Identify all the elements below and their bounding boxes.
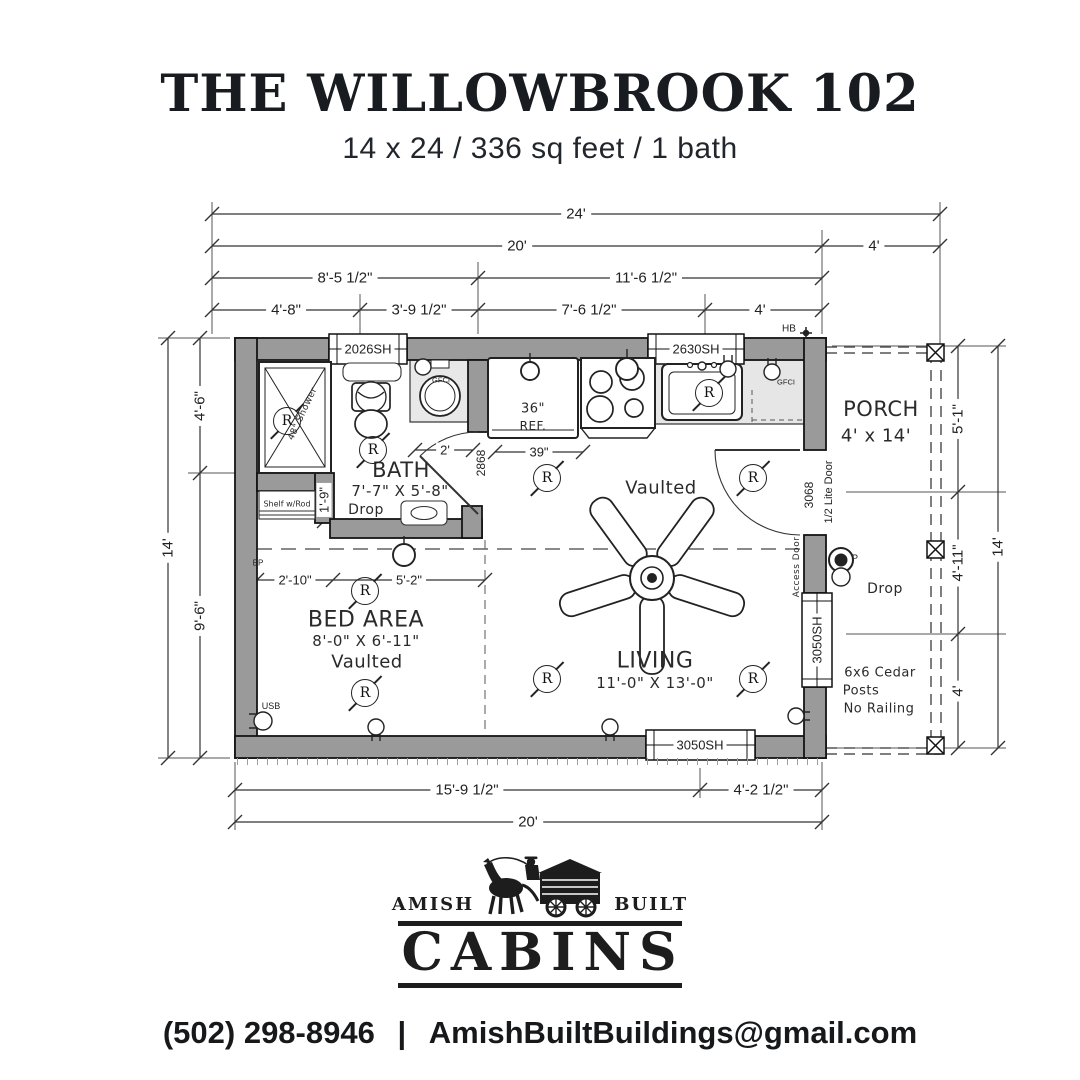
phone-number: (502) 298-8946 [163,1015,375,1050]
room-living-name: LIVING [617,649,694,674]
room-bed-name: BED AREA [308,608,424,633]
dim-seg3: 7'-6 1/2" [557,302,622,319]
room-bath-size: 7'-7" X 5'-8" [351,482,448,500]
company-logo: AMISH [390,853,690,988]
usb-outlet-label: USB [262,701,281,711]
dim-top-porch: 4' [863,238,884,255]
dim-seg4: 4' [749,302,770,319]
dim-left-top: 4'-6" [192,386,209,426]
room-porch-size: 4' x 14' [841,426,911,447]
room-bed-note: Vaulted [331,652,402,673]
window-label-3050sh-right: 3050SH [810,614,825,667]
siding-hatch [237,758,822,765]
gfci-label-kitchen: GFCI [777,378,795,387]
recessed-light-icon: R [273,407,301,435]
dim-left-bottom: 9'-6" [192,596,209,636]
separator: | [397,1015,406,1050]
dim-mid-right: 11'-6 1/2" [610,270,682,287]
porch-posts-note-2: Posts [843,684,879,699]
room-living-note: Vaulted [625,478,696,499]
hose-bib-label: HB [782,324,796,335]
dim-fridge-width: 39" [525,445,552,460]
recessed-light-icon: R [533,464,561,492]
horse-and-wagon-icon [480,853,608,919]
door-label-access: Access Door [792,537,802,598]
hamper [401,501,447,525]
dim-bed-left: 2'-10" [274,573,315,588]
meter-label: P [852,553,858,563]
porch-posts-note-1: 6x6 Cedar [844,666,916,681]
dim-bottom-right: 4'-2 1/2" [729,782,794,799]
recessed-light-icon: R [533,665,561,693]
room-porch-name: PORCH [843,397,919,421]
dim-right-total: 14' [990,532,1007,562]
ceiling-fan [557,493,747,674]
dim-sink-offset: 2' [436,443,454,458]
porch-posts [927,344,944,754]
dim-bottom-left: 15'-9 1/2" [430,782,503,799]
contact-bar: (502) 298-8946 | AmishBuiltBuildings@gma… [0,1015,1080,1051]
dim-bottom-total: 20' [513,814,543,831]
porch-drop-note: Drop [867,581,903,597]
bath-shelf [343,363,401,381]
window-label-2630sh: 2630SH [670,342,723,357]
front-door-swing [715,450,800,535]
dim-top-total: 24' [561,206,591,223]
room-bed-size: 8'-0" X 6'-11" [312,632,419,650]
toilet [352,382,390,438]
recessed-light-icon: R [359,436,387,464]
dim-seg1: 4'-8" [266,302,306,319]
room-bath-note: Drop [348,502,384,518]
dim-right-bottom: 4' [950,680,967,701]
dim-right-mid: 4'-11" [950,539,967,586]
window-label-3050sh-bottom: 3050SH [674,738,727,753]
fridge-size-label: 36" [521,402,545,417]
fridge-label: REF. [520,419,547,433]
dim-seg2: 3'-9 1/2" [387,302,452,319]
recessed-light-icon: R [695,379,723,407]
dim-top-main: 20' [502,238,532,255]
recessed-light-icon: R [739,665,767,693]
electric-panel-label: EP [253,559,264,568]
dim-closet-depth: 1'-9" [317,483,332,517]
porch-posts-note-3: No Railing [844,702,915,717]
room-living-size: 11'-0" X 13'-0" [596,674,713,692]
dim-bed-right: 5'-2" [392,573,426,588]
gfci-label-bath: GFCI [432,376,450,385]
logo-word-cabins: CABINS [396,926,690,981]
logo-word-built: BUILT [614,894,688,919]
meter [829,548,853,586]
logo-divider-bottom [398,983,682,988]
dim-mid-left: 8'-5 1/2" [313,270,378,287]
door-label-half-lite: 1/2 Lite Door [823,461,835,524]
door-label-3068: 3068 [802,482,816,509]
dim-left-total: 14' [160,533,177,563]
flyer-page: THE WILLOWBROOK 102 14 x 24 / 336 sq fee… [0,0,1080,1080]
logo-word-amish: AMISH [392,894,474,919]
door-label-2868: 2868 [474,450,488,477]
dim-right-top: 5'-1" [950,399,967,439]
recessed-light-icon: R [351,679,379,707]
closet-label: Shelf w/Rod [263,500,310,509]
recessed-light-icon: R [739,464,767,492]
email-address: AmishBuiltBuildings@gmail.com [429,1015,917,1050]
window-label-2026sh: 2026SH [342,342,395,357]
recessed-light-icon: R [351,577,379,605]
